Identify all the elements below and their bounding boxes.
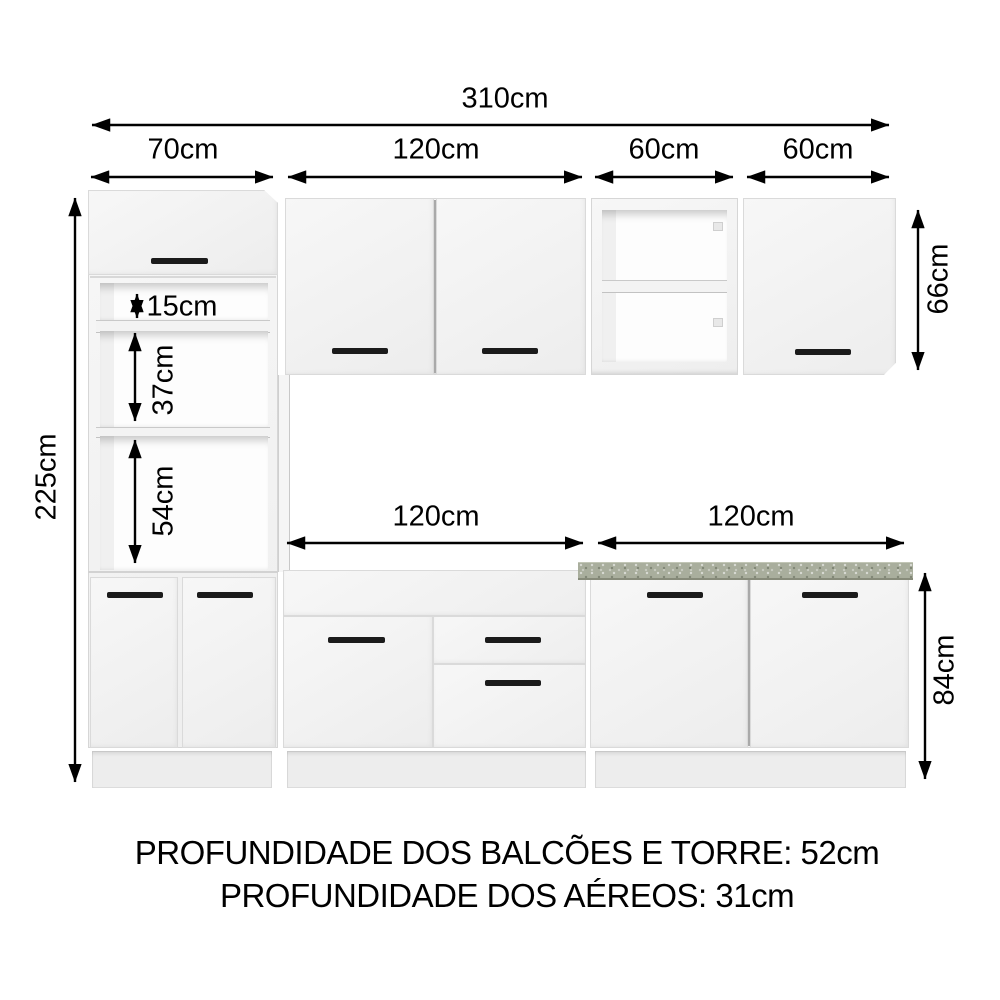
dim-label-225cm: 225cm bbox=[33, 433, 62, 520]
dim-label-total-width: 310cm bbox=[461, 85, 548, 114]
tower-base-door-left-handle bbox=[107, 592, 163, 598]
tower-top-door-handle bbox=[151, 258, 208, 264]
footer-depth-aereos: PROFUNDIDADE DOS AÉREOS: 31cm bbox=[220, 876, 794, 916]
dim-label-120cm-top: 120cm bbox=[392, 136, 479, 165]
tower-base-door-left bbox=[90, 577, 178, 748]
base-120-drawer-2-handle bbox=[485, 680, 541, 686]
wall-cabinet-120-door-gap bbox=[434, 200, 436, 373]
base-120-drawer-1-handle bbox=[485, 637, 541, 643]
kitchen-cabinet-dimension-diagram: 310cm 70cm 120cm 60cm 60cm 225cm 66cm 84… bbox=[0, 0, 1000, 1000]
tower-side-panel bbox=[278, 375, 290, 572]
base-120r-handle-left bbox=[647, 592, 703, 598]
dim-label-15cm: 15cm bbox=[147, 293, 218, 322]
wall-cabinet-60-handle bbox=[795, 349, 851, 355]
base-120r-door-left bbox=[590, 577, 748, 748]
base-120r-door-gap bbox=[748, 579, 750, 746]
tower-plinth bbox=[92, 751, 272, 788]
base-120-top-rail bbox=[283, 570, 586, 616]
base-120-left-plinth bbox=[287, 751, 586, 788]
base-cabinet-120-left bbox=[283, 570, 586, 748]
tower-base-door-right bbox=[182, 577, 276, 748]
countertop bbox=[578, 562, 913, 580]
tower-opening-54cm bbox=[100, 436, 268, 570]
dim-label-120cm-mid-right: 120cm bbox=[707, 503, 794, 532]
wall-cabinet-120 bbox=[285, 198, 586, 375]
wall-open-unit-hinge-top bbox=[713, 222, 723, 231]
tower-cabinet bbox=[88, 190, 278, 748]
base-120-door bbox=[283, 616, 433, 748]
wall-open-unit-60 bbox=[591, 198, 738, 375]
wall-open-unit-hinge-bottom bbox=[713, 318, 723, 327]
wall-cabinet-120-handle-left bbox=[332, 348, 388, 354]
dim-label-37cm: 37cm bbox=[150, 345, 179, 416]
base-cabinet-120-right bbox=[590, 577, 909, 748]
dim-label-70cm: 70cm bbox=[148, 136, 219, 165]
wall-cabinet-60 bbox=[743, 198, 896, 375]
tower-base-top-line bbox=[88, 571, 278, 573]
dim-label-60cm-a: 60cm bbox=[629, 136, 700, 165]
dim-label-120cm-mid-left: 120cm bbox=[392, 503, 479, 532]
base-120r-handle-right bbox=[802, 592, 858, 598]
tower-opening-37cm bbox=[100, 331, 268, 427]
dim-label-60cm-b: 60cm bbox=[783, 136, 854, 165]
dim-label-54cm: 54cm bbox=[150, 466, 179, 537]
base-120-right-plinth bbox=[595, 751, 906, 788]
dim-label-66cm: 66cm bbox=[925, 244, 954, 315]
base-120-drawer-2 bbox=[433, 664, 586, 748]
base-120r-door-right bbox=[750, 577, 909, 748]
wall-cabinet-120-handle-right bbox=[482, 348, 538, 354]
base-120-door-handle bbox=[328, 637, 385, 643]
footer-depth-balcoes-torre: PROFUNDIDADE DOS BALCÕES E TORRE: 52cm bbox=[135, 833, 879, 873]
tower-base-door-right-handle bbox=[197, 592, 253, 598]
dim-label-84cm: 84cm bbox=[931, 635, 960, 706]
tower-divider-line bbox=[90, 276, 276, 278]
wall-open-unit-shelf bbox=[602, 280, 727, 293]
